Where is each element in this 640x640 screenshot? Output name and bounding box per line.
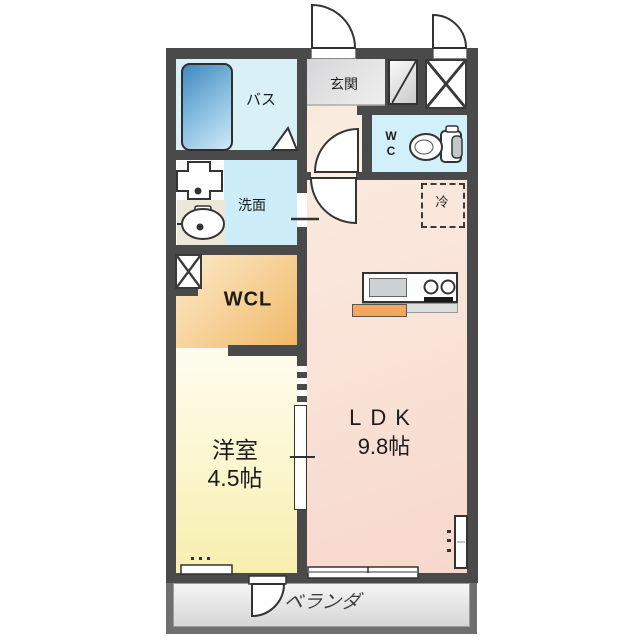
hall-floor: [307, 105, 362, 180]
western-room-label: 洋室 4.5帖: [208, 436, 263, 492]
wall-bottom: [166, 573, 478, 583]
wall-wc-bottom: [362, 172, 467, 180]
wall-shoebox-ps: [418, 59, 425, 105]
bathtub-icon: [181, 63, 233, 151]
shoe-cabinet-icon: [388, 59, 418, 105]
ps-door-threshold: [433, 48, 467, 59]
ps-door-arc-icon: [433, 15, 466, 48]
toilet-label-w: W: [385, 129, 396, 144]
wall-center-mid: [297, 227, 307, 360]
wall-hall-ldk-left: [297, 172, 311, 180]
western-room-name: 洋室: [208, 436, 263, 464]
wall-bath-washroom: [166, 150, 307, 160]
kitchen-counter-accent: [352, 304, 407, 317]
wall-left: [166, 48, 176, 583]
washroom-door-opening: [297, 193, 307, 227]
wall-right: [467, 48, 478, 583]
veranda-label: ベランダ: [283, 592, 361, 614]
entrance-label: 玄関: [330, 76, 358, 92]
pipe-space-left-icon: [175, 254, 202, 289]
sink-area: [177, 200, 225, 245]
wall-center-lower: [297, 510, 307, 573]
ldk-floor: [307, 180, 467, 573]
sliding-door-icon: [294, 405, 307, 510]
walk-in-closet-label: WCL: [224, 289, 273, 312]
kitchen-sink-icon: [369, 278, 407, 297]
bath-label: バス: [246, 91, 276, 108]
wall-dashed-section: [297, 360, 307, 406]
western-room-size: 4.5帖: [208, 464, 263, 492]
ldk-name: LDK: [349, 403, 419, 432]
washing-machine-area: [177, 161, 224, 200]
floorplan-canvas: バス 洗面 玄関 W C 冷 WCL 洋室 4.5帖 LDK 9.8帖 ベランダ: [0, 0, 640, 640]
ldk-label: LDK 9.8帖: [349, 403, 419, 461]
ldk-size: 9.8帖: [349, 432, 419, 461]
washroom-label: 洗面: [238, 197, 266, 213]
entrance-threshold: [311, 48, 356, 59]
toilet-label-c: C: [385, 144, 396, 159]
entrance-door-arc-icon: [312, 5, 355, 48]
wall-wc-left: [362, 115, 372, 172]
pipe-space-right-icon: [425, 59, 467, 109]
refrigerator-label: 冷: [435, 196, 448, 211]
wall-hall-ldk-right: [356, 172, 362, 180]
toilet-label: W C: [385, 129, 396, 159]
wall-wcl-bottom: [228, 345, 307, 356]
